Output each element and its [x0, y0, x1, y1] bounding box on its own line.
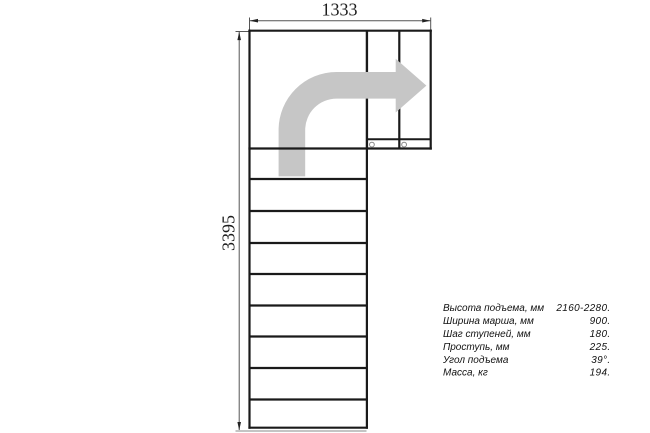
svg-text:225.: 225.: [589, 342, 611, 353]
svg-text:900.: 900.: [590, 316, 611, 327]
svg-text:39°.: 39°.: [591, 355, 610, 366]
svg-text:2160-2280.: 2160-2280.: [555, 303, 610, 314]
svg-text:Проступь, мм: Проступь, мм: [443, 342, 510, 353]
svg-text:194.: 194.: [590, 368, 611, 379]
svg-text:180.: 180.: [590, 329, 611, 340]
svg-text:3395: 3395: [219, 215, 239, 251]
svg-text:1333: 1333: [322, 0, 358, 20]
svg-text:Ширина марша, мм: Ширина марша, мм: [443, 316, 534, 327]
svg-text:Масса, кг: Масса, кг: [443, 368, 488, 379]
svg-text:Высота подъема, мм: Высота подъема, мм: [443, 303, 544, 314]
svg-text:Угол подъема: Угол подъема: [442, 355, 509, 366]
svg-text:Шаг ступеней, мм: Шаг ступеней, мм: [443, 329, 531, 340]
